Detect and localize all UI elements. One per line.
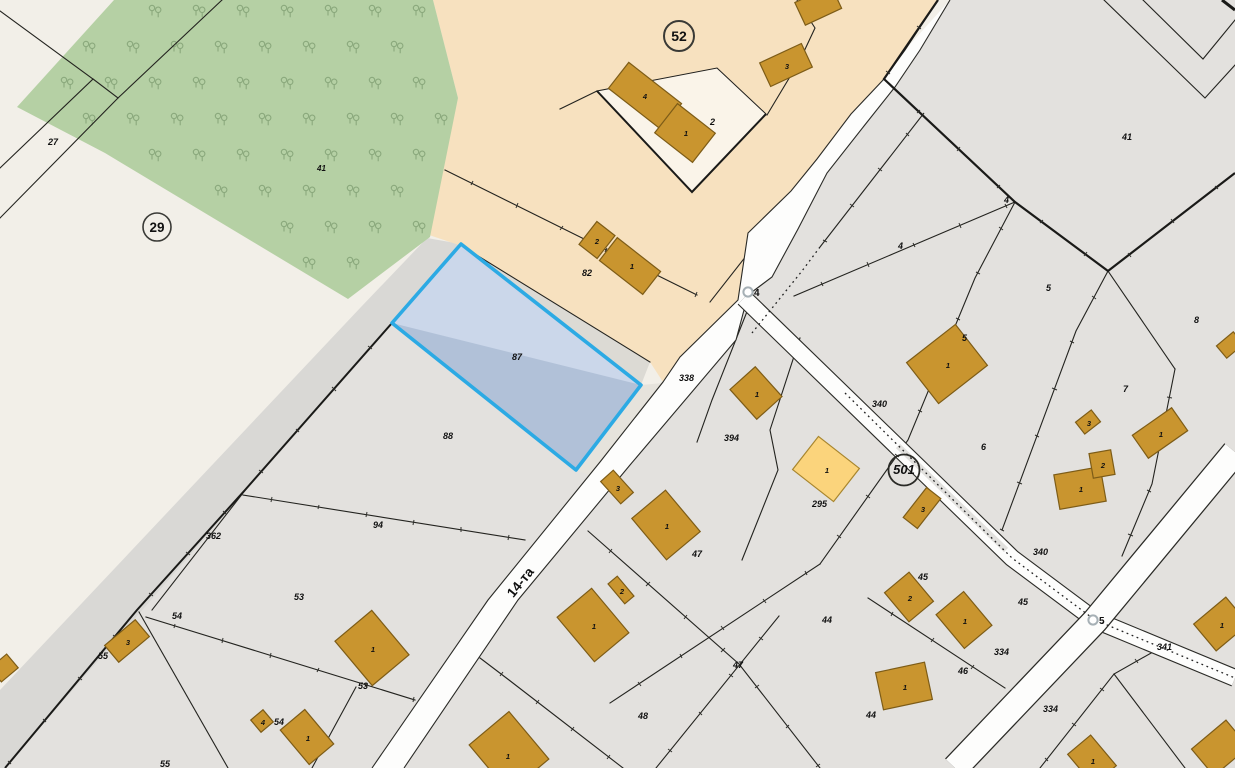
svg-text:44: 44 <box>865 710 876 720</box>
svg-text:53: 53 <box>294 592 304 602</box>
svg-text:4: 4 <box>260 718 266 727</box>
svg-text:45: 45 <box>1017 597 1029 607</box>
svg-text:47: 47 <box>732 660 744 670</box>
svg-text:2: 2 <box>709 117 715 127</box>
svg-text:46: 46 <box>957 666 969 676</box>
svg-text:27: 27 <box>47 137 59 147</box>
svg-text:1: 1 <box>903 683 907 692</box>
svg-text:45: 45 <box>917 572 929 582</box>
svg-text:1: 1 <box>506 752 510 761</box>
svg-text:334: 334 <box>1043 704 1058 714</box>
svg-text:340: 340 <box>872 399 887 409</box>
svg-text:53: 53 <box>358 681 368 691</box>
svg-text:88: 88 <box>443 431 453 441</box>
svg-text:1: 1 <box>592 622 596 631</box>
svg-text:2: 2 <box>594 237 600 246</box>
svg-text:54: 54 <box>172 611 182 621</box>
svg-text:41: 41 <box>316 164 326 173</box>
svg-text:82: 82 <box>582 268 592 278</box>
svg-text:501: 501 <box>893 462 915 477</box>
svg-text:340: 340 <box>1033 547 1048 557</box>
svg-text:2: 2 <box>1100 461 1106 470</box>
svg-text:1: 1 <box>665 522 669 531</box>
svg-text:5: 5 <box>1099 616 1105 627</box>
svg-text:41: 41 <box>1121 132 1132 142</box>
svg-text:1: 1 <box>1079 485 1083 494</box>
svg-text:55: 55 <box>98 651 109 661</box>
svg-text:1: 1 <box>371 645 375 654</box>
svg-text:362: 362 <box>206 531 221 541</box>
svg-text:1: 1 <box>1159 430 1163 439</box>
svg-text:47: 47 <box>691 549 703 559</box>
svg-text:4: 4 <box>754 288 760 299</box>
svg-text:87: 87 <box>512 352 523 362</box>
svg-text:1: 1 <box>1220 621 1224 630</box>
svg-text:1: 1 <box>825 466 829 475</box>
svg-text:4: 4 <box>897 241 903 251</box>
svg-text:1: 1 <box>684 129 688 138</box>
svg-text:2: 2 <box>619 587 625 596</box>
svg-text:52: 52 <box>671 28 687 44</box>
svg-text:334: 334 <box>994 647 1009 657</box>
svg-text:1: 1 <box>630 262 634 271</box>
svg-text:338: 338 <box>679 373 694 383</box>
svg-text:29: 29 <box>149 220 164 235</box>
svg-text:1: 1 <box>306 734 310 743</box>
svg-text:4: 4 <box>642 92 648 101</box>
svg-text:55: 55 <box>160 759 171 768</box>
svg-text:54: 54 <box>274 717 284 727</box>
svg-text:44: 44 <box>821 615 832 625</box>
svg-text:1: 1 <box>963 617 967 626</box>
svg-text:394: 394 <box>724 433 739 443</box>
svg-text:295: 295 <box>811 499 828 509</box>
svg-text:1: 1 <box>755 390 759 399</box>
svg-text:48: 48 <box>637 711 648 721</box>
svg-text:2: 2 <box>907 594 913 603</box>
svg-text:8: 8 <box>1194 315 1199 325</box>
svg-text:4: 4 <box>1003 195 1009 205</box>
svg-text:341: 341 <box>1157 642 1172 652</box>
svg-text:1: 1 <box>1091 757 1095 766</box>
svg-text:1: 1 <box>946 361 950 370</box>
svg-text:94: 94 <box>373 520 383 530</box>
